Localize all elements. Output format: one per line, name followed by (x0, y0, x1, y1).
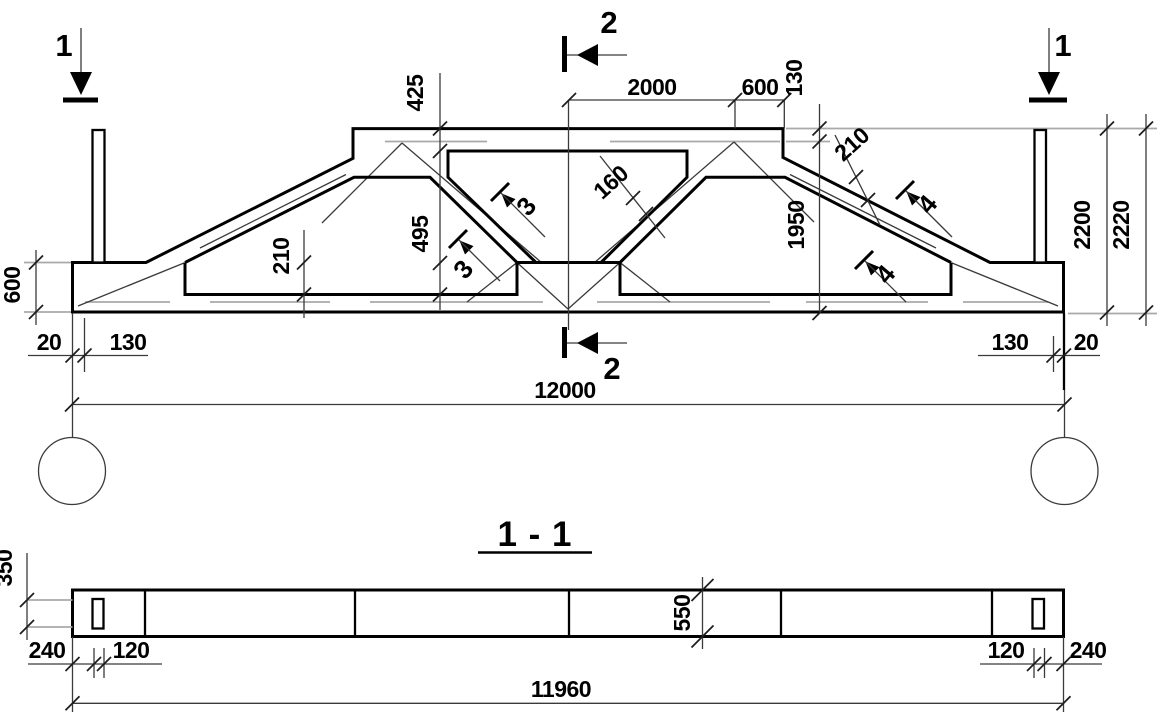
section-title: 1 - 1 (497, 515, 572, 554)
dimension-lines (28, 100, 1100, 405)
callout-label: 3 (510, 191, 542, 221)
anchor-post-left (93, 130, 105, 263)
dim-210-left: 210 (268, 238, 294, 275)
dim-130-step: 130 (781, 60, 807, 97)
section-mark-label: 1 (55, 28, 72, 63)
section-mark-1-left: 1 (55, 28, 98, 103)
callout-3-upper: 3 (491, 183, 545, 237)
section-title-group: 1 - 1 (478, 515, 592, 554)
section-mark-2-top: 2 (562, 5, 627, 72)
section-mark-label: 2 (603, 351, 620, 386)
dim-1950: 1950 (783, 200, 809, 249)
dim-120-left: 120 (113, 637, 150, 663)
dim-550: 550 (669, 595, 695, 632)
section-arrow-left-icon (577, 44, 598, 66)
anchor-slot-left (93, 599, 104, 629)
axis-bubble-right (1031, 438, 1098, 505)
dim-11960: 11960 (531, 676, 591, 702)
anchor-post-right (1035, 130, 1047, 263)
dim-2000: 2000 (627, 74, 676, 100)
dim-ticks (29, 93, 1153, 412)
axis-bubble-left (39, 438, 106, 505)
dim-495: 495 (407, 215, 433, 253)
dim-240-left: 240 (29, 637, 66, 663)
callout-label: 4 (911, 189, 944, 220)
dim-20-left: 20 (37, 329, 62, 355)
dim-130-left: 130 (110, 329, 147, 355)
dim-120-right: 120 (988, 637, 1025, 663)
dim-2220: 2220 (1108, 200, 1134, 249)
dim-20-right: 20 (1074, 329, 1099, 355)
section-mark-label: 1 (1054, 28, 1071, 63)
dim-2200: 2200 (1069, 200, 1095, 249)
dim-12000: 12000 (534, 377, 595, 403)
section-view: 1 - 1 350 550 (0, 515, 1106, 712)
dim-600-top: 600 (742, 74, 779, 100)
dim-600-left: 600 (0, 267, 25, 304)
elevation-view: 1 1 2 2 3 (0, 5, 1157, 505)
section-arrow-left-icon (577, 332, 598, 354)
dim-240-right: 240 (1070, 637, 1107, 663)
beam-drawing: 1 1 2 2 3 (0, 0, 1161, 718)
callout-label: 3 (447, 254, 479, 284)
dim-425: 425 (402, 74, 428, 112)
section-mark-label: 2 (600, 5, 617, 40)
dim-130-right: 130 (992, 329, 1029, 355)
dim-350-group: 350 (0, 550, 73, 640)
drawing-sheet: 1 1 2 2 3 (0, 0, 1161, 718)
section-arrow-down-icon (70, 72, 92, 95)
dim-550-group: 550 (669, 577, 714, 649)
anchor-slot-right (1033, 599, 1045, 629)
opening-center (448, 151, 687, 263)
dim-160: 160 (588, 160, 633, 204)
section-mark-1-right: 1 (1029, 28, 1072, 103)
callout-label: 4 (869, 259, 902, 290)
section-bottom-dims: 240 120 120 240 11960 (28, 637, 1106, 712)
extension-lines-grey (24, 129, 1157, 314)
dim-350: 350 (0, 550, 17, 587)
section-arrow-down-icon (1038, 72, 1060, 95)
plan-dividers (145, 590, 992, 637)
